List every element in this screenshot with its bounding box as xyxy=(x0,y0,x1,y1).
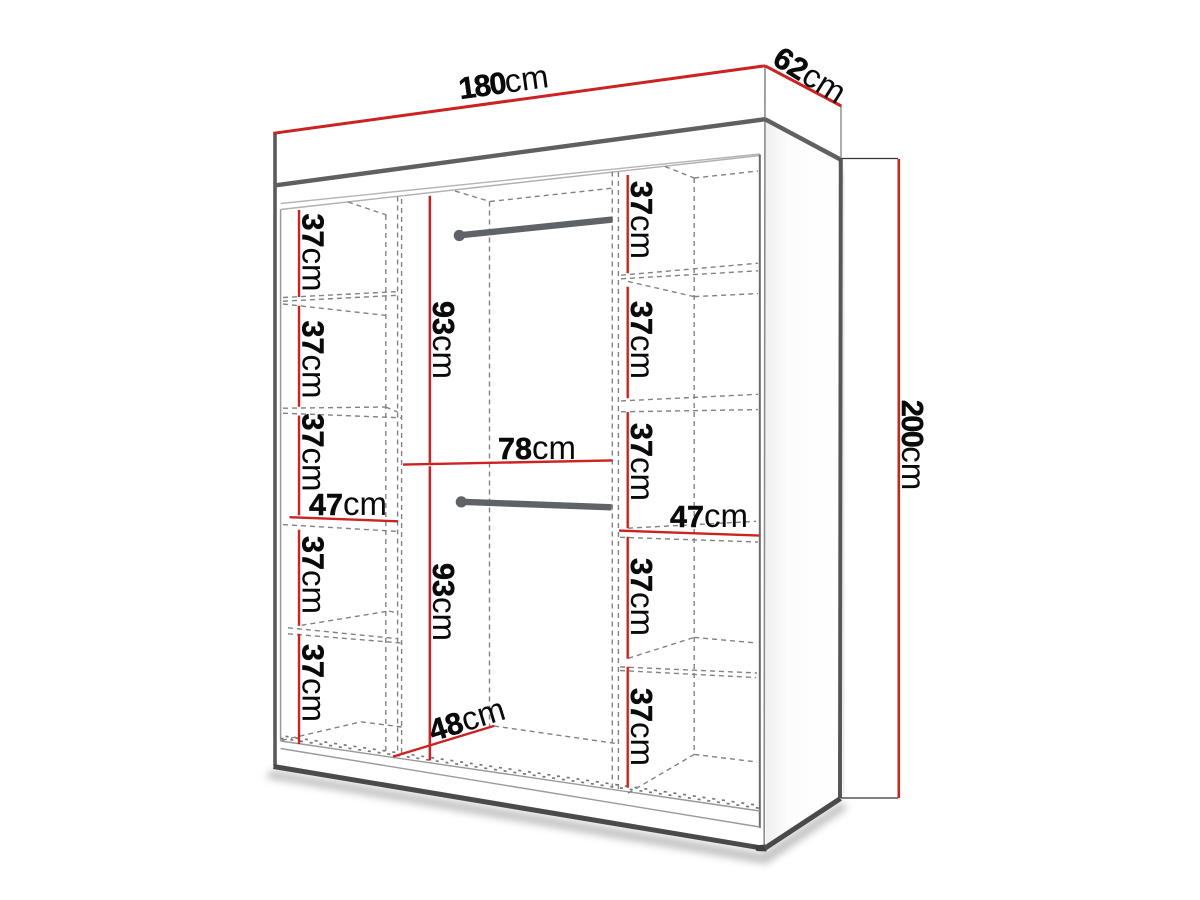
svg-text:37cm: 37cm xyxy=(624,423,661,501)
svg-text:78cm: 78cm xyxy=(498,429,576,466)
svg-text:37cm: 37cm xyxy=(624,181,661,259)
svg-text:37cm: 37cm xyxy=(295,644,332,722)
svg-text:37cm: 37cm xyxy=(295,214,332,292)
svg-text:37cm: 37cm xyxy=(624,558,661,636)
svg-text:93cm: 93cm xyxy=(426,563,463,641)
svg-text:37cm: 37cm xyxy=(295,536,332,614)
svg-text:37cm: 37cm xyxy=(624,688,661,766)
svg-text:93cm: 93cm xyxy=(426,301,463,379)
svg-text:200cm: 200cm xyxy=(895,400,932,490)
svg-text:47cm: 47cm xyxy=(670,497,748,534)
svg-text:37cm: 37cm xyxy=(295,321,332,399)
svg-text:47cm: 47cm xyxy=(309,485,387,522)
svg-text:37cm: 37cm xyxy=(624,301,661,379)
svg-text:37cm: 37cm xyxy=(295,414,332,492)
